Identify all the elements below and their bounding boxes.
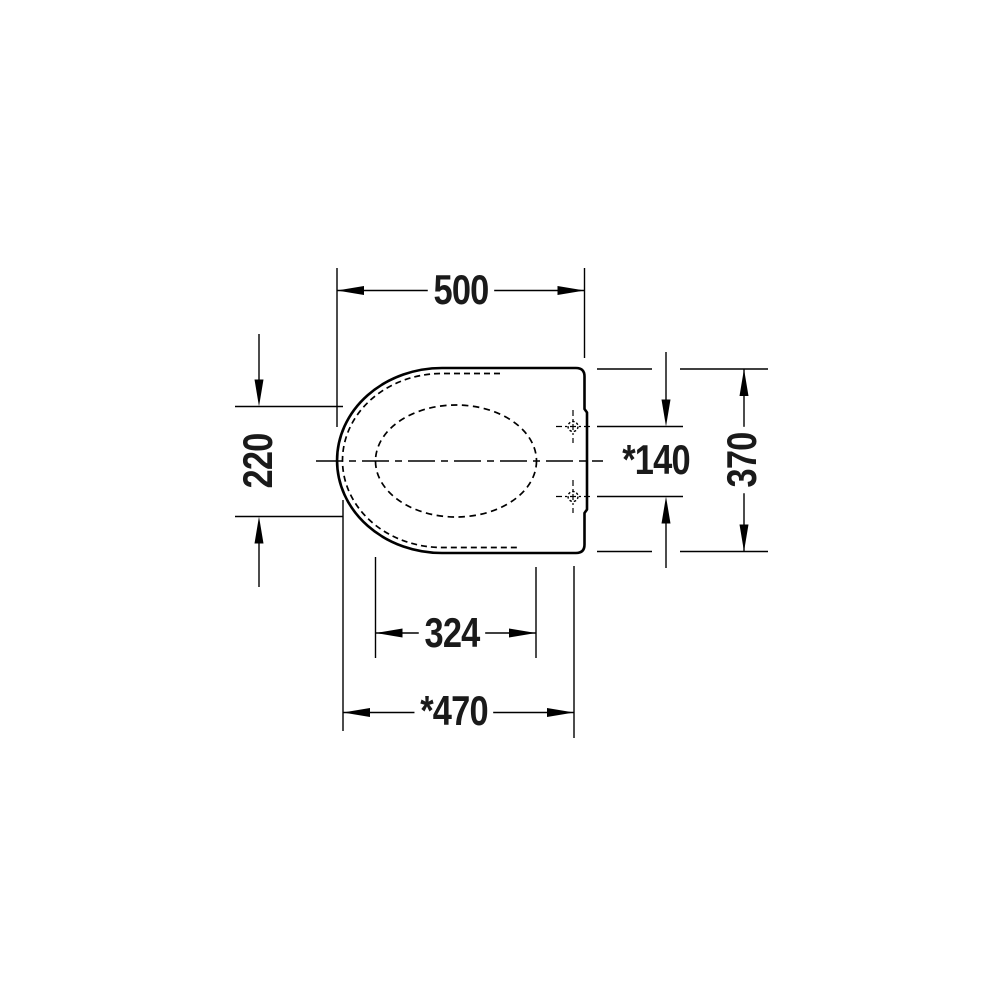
arrow-370-bottom	[740, 525, 749, 552]
arrow-140-top	[662, 400, 671, 427]
dim-label-324: 324	[419, 609, 485, 657]
arrow-220-bottom	[255, 517, 264, 544]
drawing-linework	[0, 0, 1000, 1000]
arrow-500-right	[558, 286, 585, 295]
dim-label-470: *470	[414, 687, 493, 735]
dim-label-500: 500	[428, 266, 494, 314]
arrow-370-top	[740, 369, 749, 396]
dim-label-220: 220	[234, 428, 282, 494]
dimension-drawing: 500 220 *140 370 324 *470	[0, 0, 1000, 1000]
dim-label-370: 370	[718, 427, 766, 493]
arrow-140-bottom	[662, 497, 671, 524]
arrow-470-left	[343, 708, 370, 717]
arrow-220-top	[255, 380, 264, 407]
seat-top-view	[316, 368, 603, 553]
arrow-470-right	[547, 708, 574, 717]
arrow-324-right	[509, 629, 536, 638]
arrow-500-left	[337, 286, 364, 295]
dim-label-140: *140	[616, 436, 695, 484]
arrow-324-left	[376, 629, 403, 638]
